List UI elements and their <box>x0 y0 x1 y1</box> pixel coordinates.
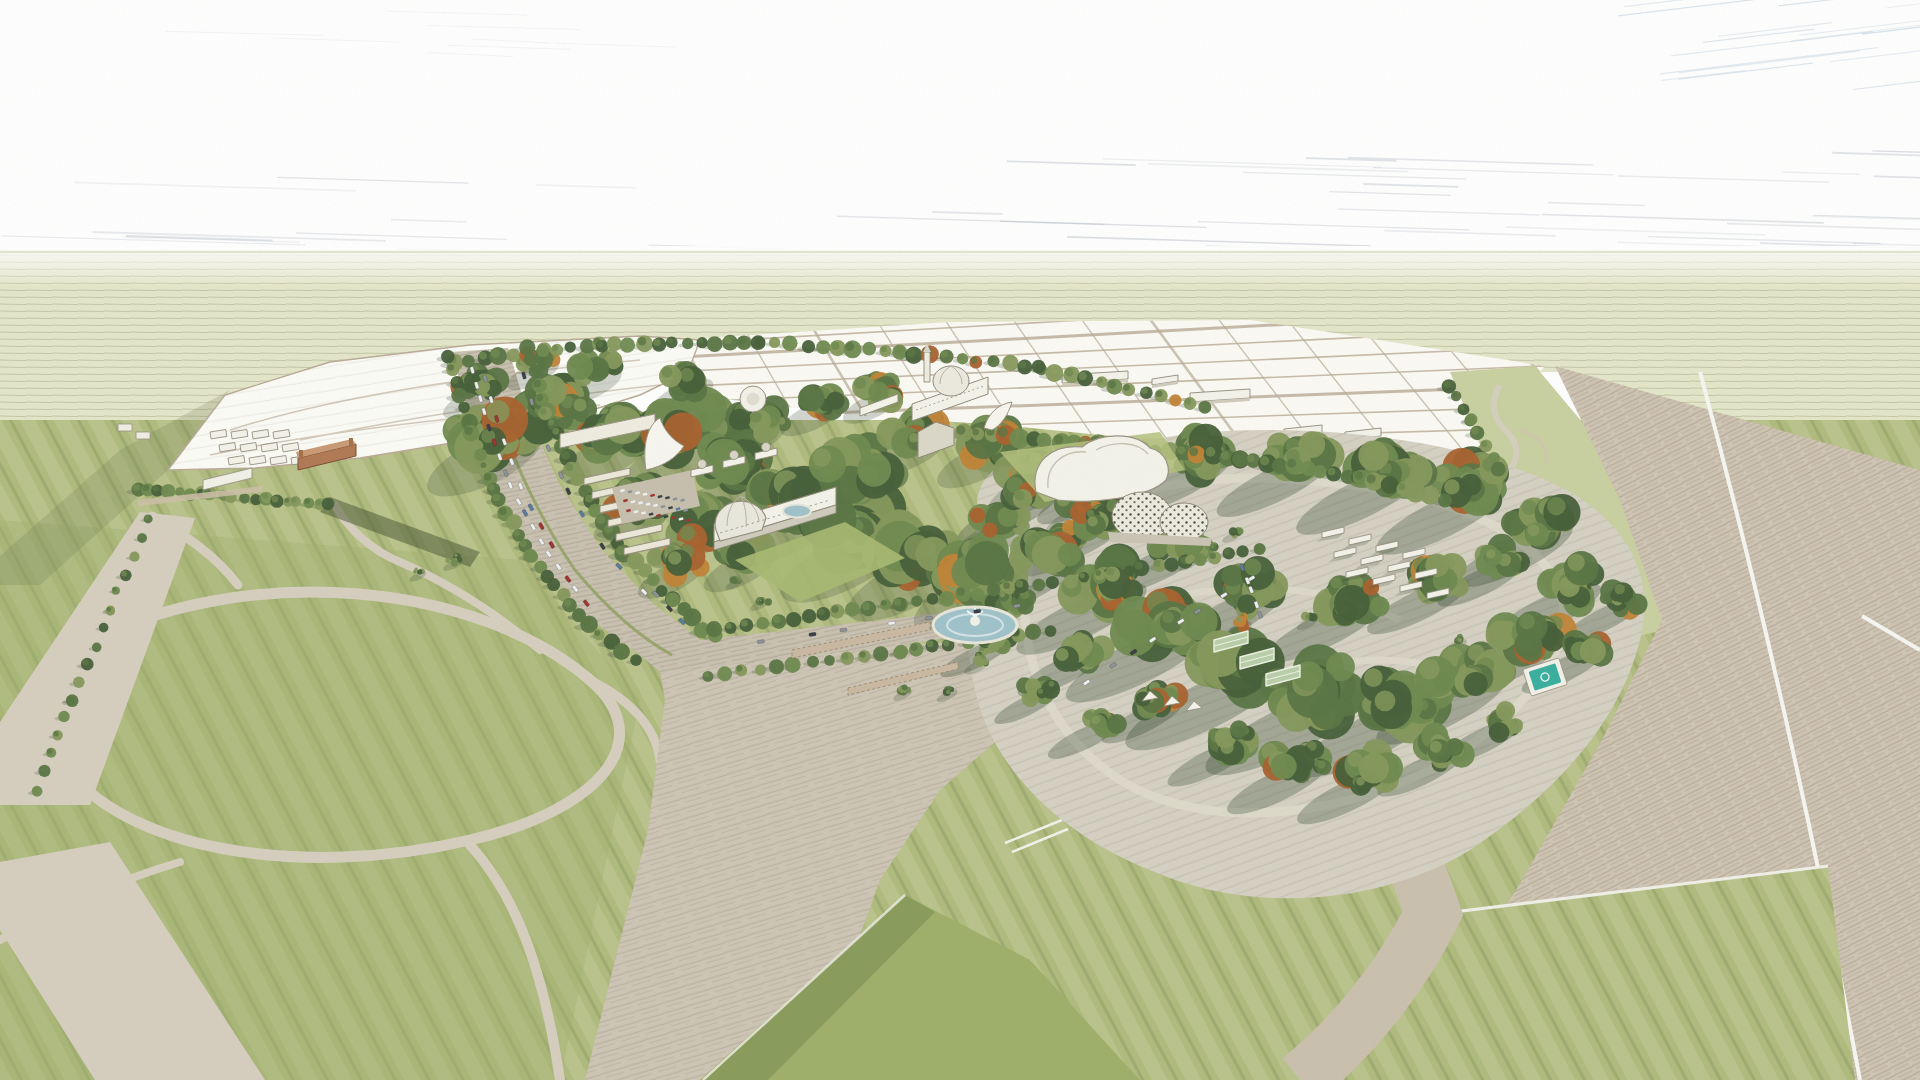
paper-grain-overlay <box>0 0 1920 1080</box>
aerial-masterplan-rendering <box>0 0 1920 1080</box>
rendering-canvas <box>0 0 1920 1080</box>
